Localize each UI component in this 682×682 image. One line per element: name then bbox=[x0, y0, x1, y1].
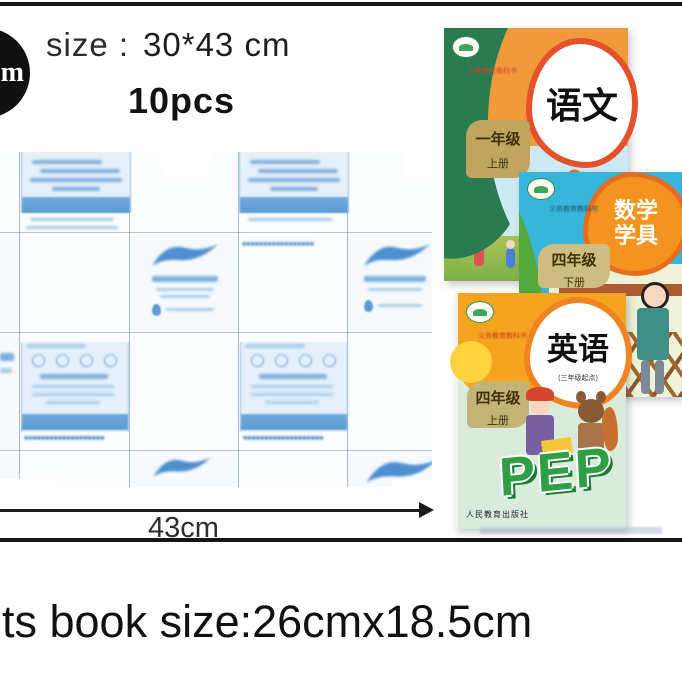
volume-text: 下册 bbox=[538, 274, 610, 290]
printed-text-line: ■■■■■■■■■■■■■■■■■ bbox=[242, 241, 314, 248]
grade-text: 四年级 bbox=[538, 249, 610, 270]
size-label: size : bbox=[46, 26, 129, 63]
squirrel-ear bbox=[576, 391, 586, 403]
book-cover-english: 义务教育教科书 英语 (三年级起点) 四年级 上册 PEP 人民教育出版社 bbox=[455, 293, 626, 529]
girl-hat bbox=[526, 387, 554, 401]
fold-line bbox=[0, 332, 432, 333]
boy-leg bbox=[655, 360, 664, 394]
book3-title: 英语 bbox=[547, 324, 609, 369]
printed-text-line: ■■■■■■■■■■■■■■■■■■■ bbox=[243, 435, 323, 442]
droplet-icon bbox=[152, 304, 161, 316]
printed-instruction-panel bbox=[21, 342, 129, 432]
fold-line bbox=[0, 450, 432, 451]
series-text: 义务教育教科书 bbox=[478, 331, 527, 341]
top-divider bbox=[0, 2, 682, 6]
brand-swoosh-icon bbox=[148, 240, 222, 270]
grade-text: 一年级 bbox=[466, 128, 530, 149]
series-text: 义务教育教科书 bbox=[468, 66, 517, 76]
fold-line bbox=[0, 232, 432, 233]
brand-logo-panel bbox=[356, 238, 432, 328]
book1-grade-label: 一年级 上册 bbox=[466, 120, 530, 178]
printed-text-line: ■■■■■■■■■■■■■■■■■■■ bbox=[24, 435, 104, 442]
brand-swoosh-icon bbox=[360, 240, 434, 270]
book2-title-line1: 数学 bbox=[614, 199, 658, 224]
ministry-logo-icon bbox=[527, 178, 555, 200]
ministry-logo-icon bbox=[452, 36, 480, 58]
book2-title-line2: 学具 bbox=[614, 224, 658, 249]
volume-text: 上册 bbox=[466, 155, 530, 171]
series-text: 义务教育教科书 bbox=[549, 204, 598, 214]
width-dimension-label: 43cm bbox=[148, 512, 219, 545]
brand-swoosh-icon bbox=[150, 454, 214, 480]
brand-logo-panel bbox=[140, 238, 230, 328]
fold-line bbox=[19, 150, 20, 488]
book1-title: 语文 bbox=[546, 77, 618, 129]
size-badge: m bbox=[0, 28, 30, 118]
boy-head bbox=[641, 282, 669, 310]
ministry-logo-icon bbox=[466, 301, 494, 323]
quantity-label: 10pcs bbox=[128, 80, 235, 122]
size-line: size :30*43 cm bbox=[46, 26, 290, 64]
book-shadow bbox=[480, 527, 662, 534]
squirrel-ear bbox=[596, 391, 606, 403]
size-value: 30*43 cm bbox=[143, 26, 290, 63]
brand-swoosh-icon bbox=[362, 454, 442, 488]
printed-instruction-panel bbox=[21, 152, 131, 213]
book2-grade-label: 四年级 下册 bbox=[538, 244, 610, 288]
fit-size-text: its book size:26cmx18.5cm bbox=[0, 596, 532, 648]
product-image: m size :30*43 cm 10pcs bbox=[0, 0, 682, 682]
boy-leg bbox=[641, 360, 650, 394]
yellow-circle bbox=[450, 341, 492, 383]
book1-title-blob: 语文 bbox=[526, 38, 638, 168]
printed-instruction-panel bbox=[239, 152, 349, 213]
bottom-divider bbox=[0, 538, 682, 542]
book3-publisher: 人民教育出版社 bbox=[466, 509, 529, 520]
size-badge-text: m bbox=[1, 57, 24, 89]
book3-brand-letters: PEP bbox=[489, 434, 624, 510]
printed-instruction-panel bbox=[240, 342, 348, 432]
book-cover-sheet: ■■■■■■■■■■■■■■■■■ bbox=[0, 148, 432, 490]
width-arrow-head bbox=[419, 502, 434, 518]
boy-body bbox=[637, 308, 669, 360]
droplet-icon bbox=[364, 300, 373, 312]
